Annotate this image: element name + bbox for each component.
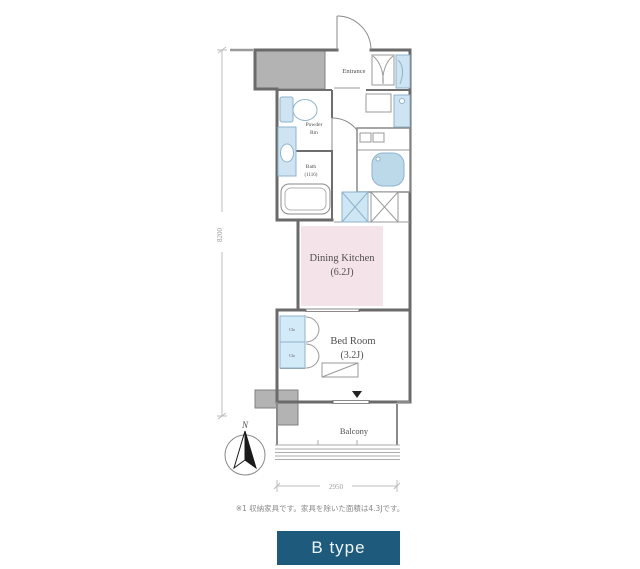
closet-upper-label: Clo (289, 327, 295, 332)
shoe-cabinet (372, 55, 394, 85)
dining-kitchen-area (301, 226, 383, 306)
powder-room-label-line2: Rm (310, 130, 319, 136)
dimension-horizontal-value: 2950 (329, 483, 344, 491)
closet-lower-label: Clo (289, 353, 295, 358)
bath-label-line1: Bath (306, 164, 317, 170)
washbasin (278, 127, 296, 176)
closet (280, 316, 319, 368)
type-badge: B type (277, 531, 400, 565)
utility-cabinet (396, 55, 410, 88)
storage-furniture (322, 363, 358, 377)
entrance-label: Entrance (342, 68, 365, 75)
entrance-door-swing (337, 16, 371, 50)
balcony-label: Balcony (340, 426, 369, 436)
dining-kitchen-size: (6.2J) (330, 267, 353, 278)
floorplan-drawing: N 8200 2950 Entrance Powder Rm Bath (111… (0, 0, 640, 569)
kitchen-counter (357, 128, 410, 192)
powder-room-label-line1: Powder (306, 122, 323, 128)
compass-north-label: N (241, 420, 249, 430)
dimension-vertical-value: 8200 (216, 228, 224, 243)
bathtub (281, 184, 330, 214)
dining-kitchen-label: Dining Kitchen (309, 253, 375, 264)
refrigerator-space (371, 192, 398, 222)
footnote-text: ※1 収納家具です。家具を除いた面積は4.3Jです。 (0, 503, 640, 514)
floorplan-page: N 8200 2950 Entrance Powder Rm Bath (111… (0, 0, 640, 569)
bath-label-line2: (1116) (305, 173, 318, 178)
balcony-railing (275, 440, 400, 460)
toilet (280, 97, 317, 122)
washer-space (366, 94, 410, 127)
concrete-block-top (255, 49, 325, 89)
bed-room-size: (3.2J) (340, 350, 363, 361)
washing-machine-space (342, 192, 368, 222)
balcony-door-arrow-icon (352, 391, 362, 398)
type-badge-label: B type (311, 538, 365, 558)
north-compass-icon: N (225, 420, 265, 475)
bed-room-label: Bed Room (330, 336, 375, 347)
